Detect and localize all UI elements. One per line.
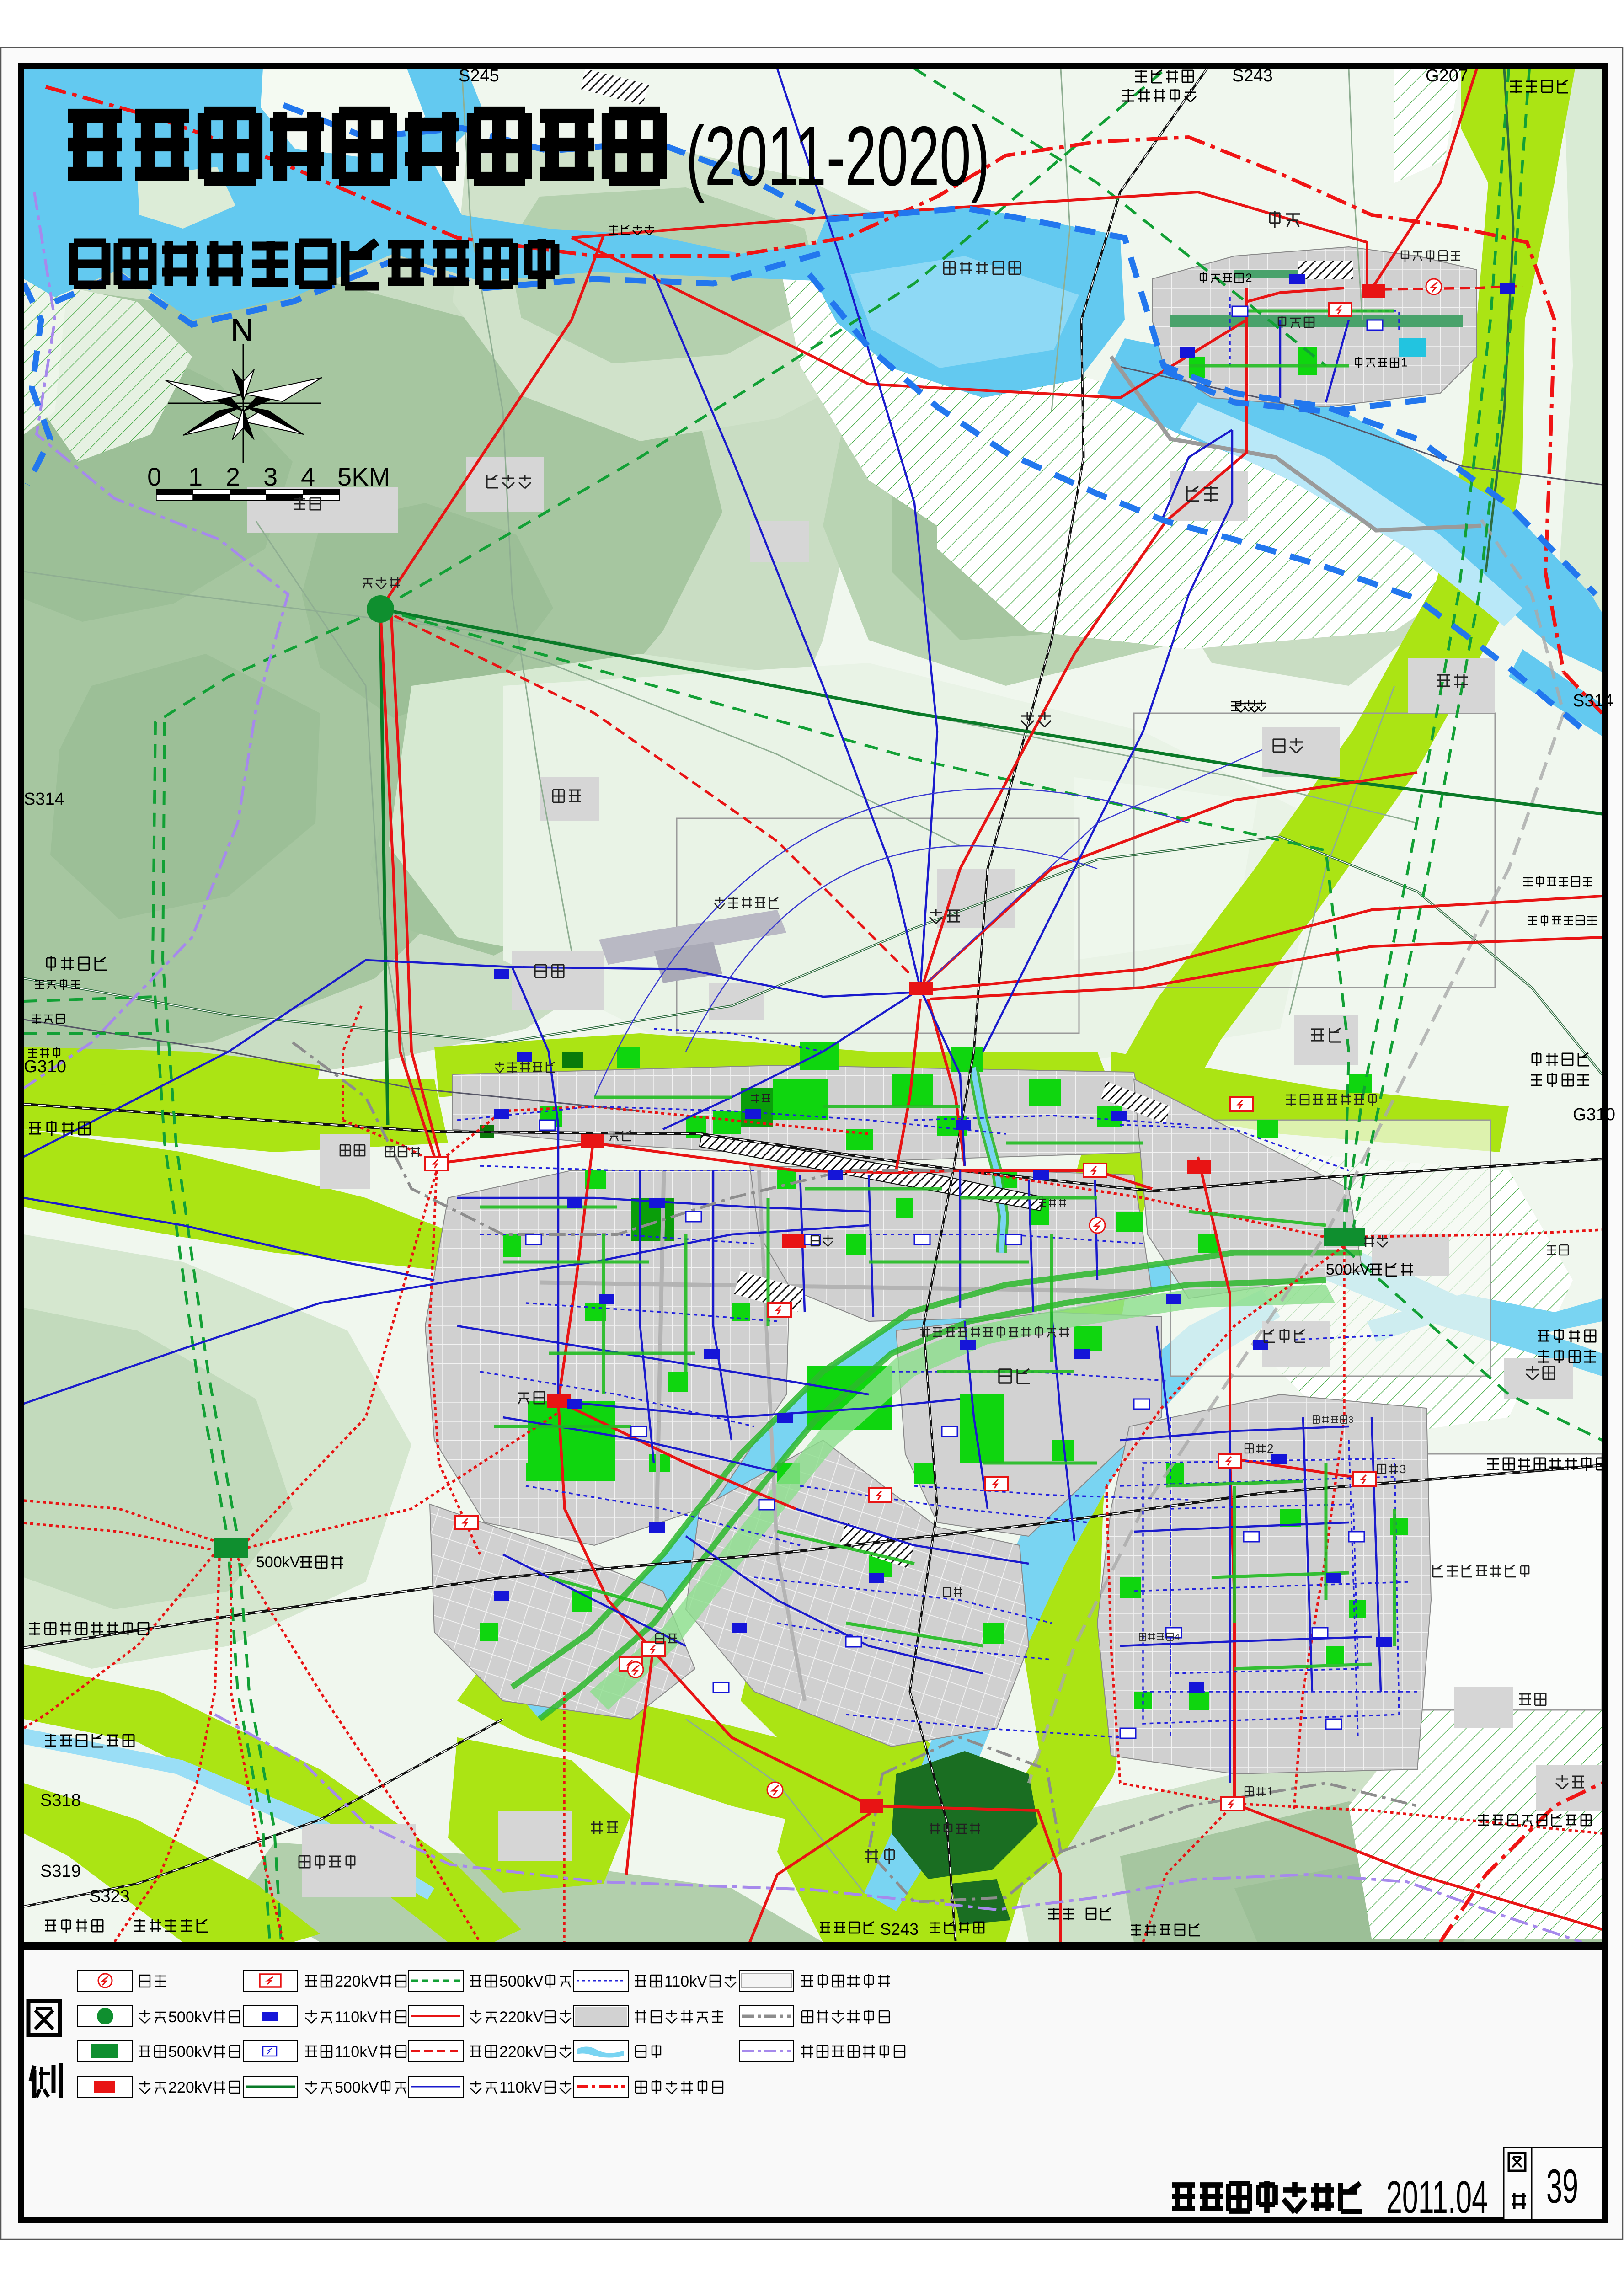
svg-text:3: 3 [263, 462, 278, 491]
svg-text:3: 3 [1348, 1415, 1353, 1425]
svg-text:110kV: 110kV [664, 1973, 707, 1990]
svg-text:1: 1 [188, 462, 203, 491]
svg-text:S245: S245 [459, 66, 499, 85]
svg-text:4: 4 [1175, 1632, 1180, 1642]
svg-text:S314: S314 [1573, 691, 1613, 710]
svg-text:G310: G310 [24, 1057, 66, 1076]
svg-text:500kV: 500kV [499, 1973, 544, 1990]
svg-text:3: 3 [1400, 1462, 1406, 1476]
svg-text:500kV: 500kV [168, 2008, 213, 2026]
svg-text:500kV: 500kV [1326, 1261, 1370, 1278]
svg-text:5KM: 5KM [337, 462, 390, 491]
svg-text:S243: S243 [1232, 66, 1273, 85]
svg-text:39: 39 [1546, 2160, 1578, 2213]
svg-text:110kV: 110kV [335, 2043, 378, 2061]
svg-text:(2011-2020): (2011-2020) [686, 109, 990, 203]
svg-text:2: 2 [226, 462, 240, 491]
svg-text:110kV: 110kV [335, 2008, 378, 2026]
svg-text:S243: S243 [880, 1920, 919, 1939]
svg-text:1: 1 [1401, 355, 1407, 369]
svg-text:220kV: 220kV [335, 1973, 379, 1990]
svg-text:S319: S319 [40, 1862, 81, 1881]
svg-text:2: 2 [1245, 271, 1252, 284]
svg-text:500kV: 500kV [335, 2079, 379, 2096]
svg-text:S323: S323 [89, 1887, 130, 1906]
svg-text:2: 2 [1267, 1442, 1273, 1455]
svg-text:1: 1 [1267, 1784, 1273, 1798]
svg-text:220kV: 220kV [499, 2043, 544, 2061]
svg-text:220kV: 220kV [499, 2008, 544, 2026]
svg-text:220kV: 220kV [168, 2079, 213, 2096]
svg-text:500kV: 500kV [256, 1554, 300, 1571]
svg-text:S318: S318 [40, 1791, 81, 1810]
svg-text:110kV: 110kV [499, 2079, 542, 2096]
svg-text:G310: G310 [1573, 1105, 1615, 1124]
svg-text:2011.04: 2011.04 [1386, 2172, 1488, 2223]
svg-text:500kV: 500kV [168, 2043, 213, 2061]
svg-text:G207: G207 [1426, 66, 1468, 85]
svg-text:S314: S314 [24, 790, 64, 809]
svg-text:4: 4 [301, 462, 315, 491]
svg-text:N: N [231, 313, 253, 347]
svg-text:0: 0 [147, 462, 161, 491]
